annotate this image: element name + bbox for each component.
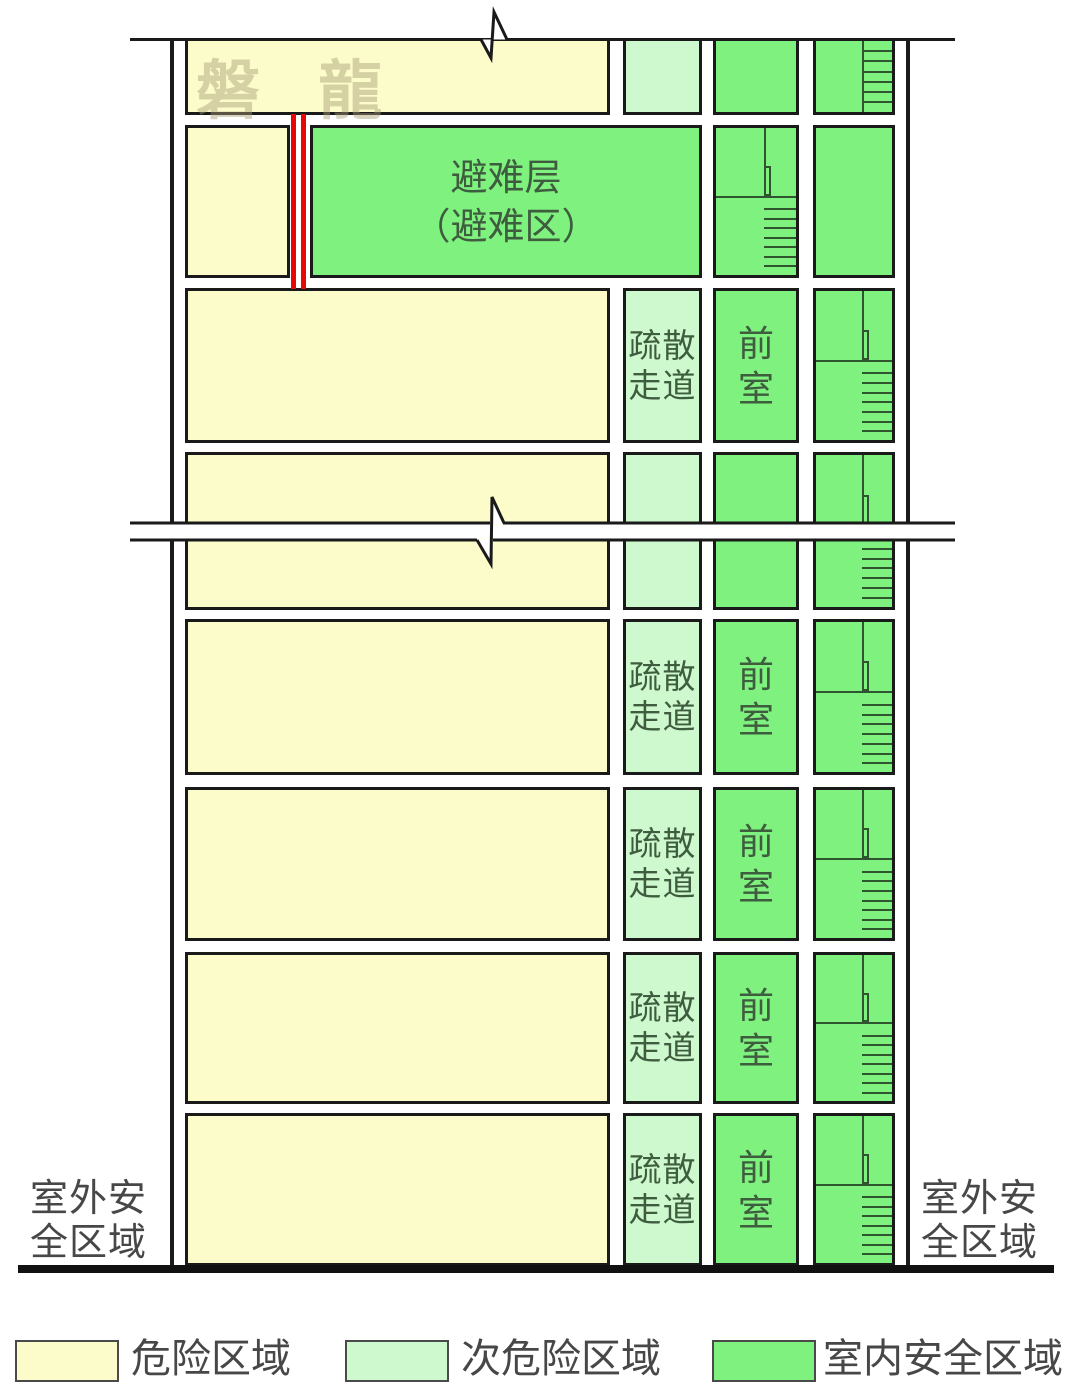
stair-tread-line xyxy=(764,237,796,239)
vestibule-label: 前室 xyxy=(716,790,796,938)
stair-door xyxy=(764,166,771,195)
ground-line xyxy=(18,1265,1054,1273)
stair-tread-line xyxy=(862,577,892,579)
vestibule-label-line: 室 xyxy=(738,1190,774,1235)
vestibule-label-line: 前 xyxy=(738,983,774,1028)
stair-tread-line xyxy=(862,900,892,902)
outdoor-safe-area-label-right: 室外安 全区域 xyxy=(921,1177,1051,1265)
vestibule: 前室 xyxy=(713,787,799,941)
legend-swatch-sub-hazard xyxy=(345,1340,449,1382)
outdoor-label-line: 室外安 xyxy=(30,1177,160,1221)
stair-tread-line xyxy=(862,1206,892,1208)
vestibule xyxy=(713,452,799,610)
vestibule: 前室 xyxy=(713,288,799,443)
hazard-area xyxy=(185,452,610,610)
corridor-label: 疏散走道 xyxy=(626,1116,699,1263)
vestibule: 前室 xyxy=(713,1113,799,1266)
evacuation-corridor: 疏散走道 xyxy=(623,952,702,1104)
stair-tread-line xyxy=(862,928,892,930)
stair-landing-line xyxy=(816,525,892,527)
stair-tread-line xyxy=(862,704,892,706)
stair-tread-line xyxy=(862,723,892,725)
evacuation-corridor: 疏散走道 xyxy=(623,288,702,443)
vestibule-label-line: 室 xyxy=(738,697,774,742)
stair-tread-line xyxy=(862,919,892,921)
legend-label-hazard: 危险区域 xyxy=(131,1338,291,1380)
stairwell xyxy=(813,952,895,1104)
stair-tread-line xyxy=(764,256,796,258)
stair-tread-line xyxy=(862,1244,892,1246)
left-wall xyxy=(170,38,174,1269)
stair-tread-line xyxy=(862,743,892,745)
stair-tread-line xyxy=(862,71,892,73)
corridor-label: 疏散走道 xyxy=(626,291,699,440)
stair-door xyxy=(862,1154,869,1183)
hazard-area xyxy=(185,619,610,775)
stairwell xyxy=(713,125,799,278)
stair-tread-line xyxy=(862,733,892,735)
stairwell xyxy=(813,1113,895,1266)
stair-landing-line xyxy=(816,858,892,860)
stair-tread-line xyxy=(862,1253,892,1255)
outdoor-label-line: 室外安 xyxy=(921,1177,1051,1221)
stair-landing-line xyxy=(816,691,892,693)
hazard-area xyxy=(185,125,290,278)
refuge-label-line: 避难层 xyxy=(451,153,562,202)
evacuation-corridor: 疏散走道 xyxy=(623,787,702,941)
stair-door xyxy=(862,661,869,691)
vestibule-label: 前室 xyxy=(716,955,796,1101)
stair-tread-line xyxy=(862,1054,892,1056)
stair-tread-line xyxy=(862,1196,892,1198)
stair-tread-line xyxy=(862,714,892,716)
stair-tread-line xyxy=(862,382,892,384)
legend-label-indoor-safe: 室内安全区域 xyxy=(823,1338,1063,1380)
hazard-area xyxy=(185,288,610,443)
corridor-label-line: 走道 xyxy=(629,697,697,737)
stairwell xyxy=(813,452,895,610)
outdoor-label-line: 全区域 xyxy=(921,1221,1051,1265)
vestibule-label-line: 前 xyxy=(738,321,774,366)
stair-tread-line xyxy=(862,762,892,764)
stair-tread-line xyxy=(862,1035,892,1037)
corridor-label-line: 疏散 xyxy=(629,824,697,864)
fire-wall-red-line xyxy=(301,114,306,289)
stairwell xyxy=(813,619,895,775)
stair-tread-line xyxy=(862,587,892,589)
stair-tread-line xyxy=(764,227,796,229)
legend-swatch-hazard xyxy=(15,1340,119,1382)
stair-tread-line xyxy=(764,218,796,220)
vestibule-label: 前室 xyxy=(716,622,796,772)
stair-landing-line xyxy=(816,360,892,362)
evacuation-corridor: 疏散走道 xyxy=(623,619,702,775)
vestibule-label-line: 前 xyxy=(738,652,774,697)
stair-tread-line xyxy=(862,1092,892,1094)
stairwell xyxy=(813,787,895,941)
vestibule: 前室 xyxy=(713,952,799,1104)
evacuation-corridor: 疏散走道 xyxy=(623,1113,702,1266)
stair-landing-line xyxy=(816,1184,892,1186)
stair-tread-line xyxy=(862,909,892,911)
vestibule-label-line: 室 xyxy=(738,864,774,909)
stair-tread-line xyxy=(862,430,892,432)
stair-tread-line xyxy=(862,60,892,62)
vestibule-label: 前室 xyxy=(716,1116,796,1263)
stair-tread-line xyxy=(764,265,796,267)
corridor-label-line: 走道 xyxy=(629,1190,697,1230)
vestibule-label: 前室 xyxy=(716,291,796,440)
vestibule: 前室 xyxy=(713,619,799,775)
stair-tread-line xyxy=(862,1225,892,1227)
stair-tread-line xyxy=(862,1044,892,1046)
corridor-label-line: 走道 xyxy=(629,1028,697,1068)
stair-landing-line xyxy=(816,1022,892,1024)
stairwell xyxy=(813,288,895,443)
hazard-area xyxy=(185,952,610,1104)
corridor-label-line: 疏散 xyxy=(629,326,697,366)
stair-tread-line xyxy=(862,597,892,599)
corridor-label-line: 疏散 xyxy=(629,1150,697,1190)
stair-tread-line xyxy=(862,91,892,93)
indoor-safe-area xyxy=(813,125,895,278)
vestibule-label-line: 室 xyxy=(738,1028,774,1073)
watermark: 磐 龍 xyxy=(196,40,400,132)
corridor-label-line: 走道 xyxy=(629,366,697,406)
stair-door xyxy=(862,495,869,525)
vestibule-label-line: 前 xyxy=(738,1145,774,1190)
fire-wall-red-line xyxy=(291,114,296,289)
stair-tread-line xyxy=(862,81,892,83)
corridor-label-line: 疏散 xyxy=(629,988,697,1028)
corridor-label: 疏散走道 xyxy=(626,790,699,938)
stair-tread-line xyxy=(862,421,892,423)
stair-landing-line xyxy=(716,196,796,198)
stair-tread-line xyxy=(862,1215,892,1217)
evacuation-corridor xyxy=(623,452,702,610)
stair-tread-line xyxy=(764,208,796,210)
refuge-area: 避难层（避难区） xyxy=(310,125,702,278)
vestibule-label-line: 室 xyxy=(738,366,774,411)
stair-tread-line xyxy=(764,246,796,248)
outdoor-safe-area-label-left: 室外安 全区域 xyxy=(30,1177,160,1265)
stair-door xyxy=(862,828,869,858)
refuge-label: 避难层（避难区） xyxy=(313,128,699,275)
outdoor-label-line: 全区域 xyxy=(30,1221,160,1265)
stair-tread-line xyxy=(862,372,892,374)
evacuation-corridor xyxy=(623,38,702,115)
stair-tread-line xyxy=(862,567,892,569)
stair-tread-line xyxy=(862,392,892,394)
stair-tread-line xyxy=(862,411,892,413)
vestibule xyxy=(713,38,799,115)
stair-tread-line xyxy=(862,548,892,550)
stair-tread-line xyxy=(862,753,892,755)
corridor-label: 疏散走道 xyxy=(626,622,699,772)
stair-tread-line xyxy=(862,1082,892,1084)
stair-tread-line xyxy=(862,401,892,403)
stair-tread-line xyxy=(862,871,892,873)
stairwell xyxy=(813,38,895,115)
vestibule-label-line: 前 xyxy=(738,819,774,864)
stair-tread-line xyxy=(862,558,892,560)
stair-tread-line xyxy=(862,50,892,52)
stair-tread-line xyxy=(862,538,892,540)
legend-label-sub-hazard: 次危险区域 xyxy=(461,1338,661,1380)
hazard-area xyxy=(185,787,610,941)
refuge-label-line: （避难区） xyxy=(414,202,599,251)
stair-tread-line xyxy=(862,880,892,882)
legend-swatch-indoor-safe xyxy=(712,1340,816,1382)
corridor-label: 疏散走道 xyxy=(626,955,699,1101)
stair-tread-line xyxy=(862,1234,892,1236)
corridor-label-line: 走道 xyxy=(629,864,697,904)
right-wall xyxy=(906,38,910,1269)
stair-tread-line xyxy=(862,1073,892,1075)
stair-tread-line xyxy=(862,890,892,892)
hazard-area xyxy=(185,1113,610,1266)
stair-door xyxy=(862,993,869,1022)
corridor-label-line: 疏散 xyxy=(629,657,697,697)
stair-door xyxy=(862,330,869,360)
fire-safety-section-diagram: 避难层（避难区）疏散走道前室疏散走道前室疏散走道前室疏散走道前室疏散走道前室 磐… xyxy=(0,0,1080,1395)
stair-tread-line xyxy=(862,101,892,103)
stair-tread-line xyxy=(862,1063,892,1065)
